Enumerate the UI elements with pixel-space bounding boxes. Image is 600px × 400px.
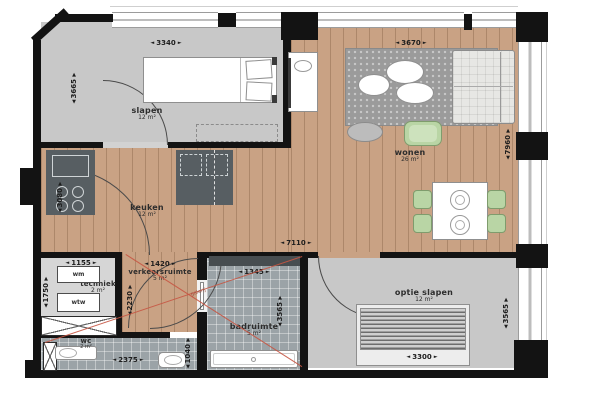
plate-inner [455, 195, 465, 205]
dimension-wonen-height: ▲ 7960 ▼ [502, 124, 514, 166]
dim-arrow-up-icon: ▲ [504, 298, 508, 303]
dim-arrow-left-icon: ◄ [65, 261, 69, 266]
room-label-optie-slapen: optie slapen 12 m² [389, 288, 459, 304]
dim-value: 3080 [57, 188, 64, 207]
dining-chair [487, 190, 506, 209]
sideboard-bowl [294, 60, 312, 72]
window [518, 160, 542, 244]
window-sill-line-top [110, 6, 518, 7]
wall-bottom [28, 370, 548, 378]
armchair-cushion [409, 125, 437, 142]
toilet-bowl [164, 355, 182, 365]
wall-segment [464, 14, 472, 30]
window [518, 42, 542, 132]
room-area: 2 m² [66, 345, 106, 351]
wall-slapen-keuken [168, 142, 291, 148]
tv [288, 58, 291, 108]
dim-value: 3340 [156, 40, 175, 47]
dim-arrow-up-icon: ▲ [72, 73, 76, 78]
sofa-back-seam [500, 52, 501, 122]
washing-machine-label: wm [73, 271, 85, 278]
dim-value: 1750 [43, 283, 50, 302]
dim-value: 2375 [118, 357, 137, 364]
room-area: 12 m² [117, 212, 177, 219]
dim-value: 3665 [71, 79, 78, 98]
dim-arrow-right-icon: ► [93, 261, 97, 266]
wall-verkeer-badruimte [197, 312, 207, 372]
sofa-seat-seam [454, 86, 513, 87]
dim-arrow-right-icon: ► [423, 41, 427, 46]
window [518, 268, 542, 340]
dim-arrow-down-icon: ▼ [44, 304, 48, 309]
floor-plan: wm wtw galerij slapen 12 m² wonen 26 m² … [0, 0, 600, 400]
sofa [452, 50, 515, 124]
dim-value: 1155 [71, 260, 90, 267]
dim-arrow-left-icon: ◄ [112, 358, 116, 363]
coffee-table [396, 82, 434, 104]
wall-badruimte-optie [300, 252, 308, 376]
dim-arrow-left-icon: ◄ [238, 270, 242, 275]
pouf [347, 122, 383, 142]
dining-chair [487, 214, 506, 233]
stove-burner [72, 200, 84, 212]
dim-arrow-down-icon: ▼ [72, 100, 76, 105]
room-label-wc: wc 2 m² [66, 337, 106, 351]
room-area: 12 m² [389, 297, 459, 304]
heat-recovery-label: wtw [72, 299, 86, 306]
dim-value: 3300 [412, 354, 431, 361]
optional-closet-outline [196, 124, 278, 142]
room-label-slapen: slapen 12 m² [117, 106, 177, 122]
plate-inner [455, 220, 465, 230]
island-appliance-outline [180, 154, 202, 176]
dimension-total-width: ◄ 7110 ► [258, 238, 334, 248]
window [236, 12, 281, 28]
dim-arrow-right-icon: ► [172, 262, 176, 267]
wall-segment [218, 13, 236, 27]
dim-arrow-down-icon: ▼ [58, 209, 62, 214]
dim-value: 3670 [401, 40, 420, 47]
dimension-wc-height: ▲ 1040 ▼ [182, 340, 194, 368]
pillow [246, 81, 273, 101]
dim-value: 1420 [150, 261, 169, 268]
dim-arrow-right-icon: ► [178, 41, 182, 46]
dim-value: 2230 [127, 291, 134, 310]
dining-chair [413, 190, 432, 209]
wall-slapen-keuken [41, 142, 103, 148]
dim-value: 1040 [185, 344, 192, 363]
dimension-techniek-width: ◄ 1155 ► [50, 259, 112, 268]
dim-arrow-up-icon: ▲ [44, 277, 48, 282]
dim-arrow-down-icon: ▼ [278, 323, 282, 328]
dim-arrow-up-icon: ▲ [128, 285, 132, 290]
dim-arrow-down-icon: ▼ [506, 156, 510, 161]
room-label-wonen: wonen 26 m² [380, 148, 440, 164]
window [112, 12, 218, 28]
dim-arrow-down-icon: ▼ [186, 365, 190, 370]
dining-chair [413, 214, 432, 233]
dim-arrow-right-icon: ► [434, 355, 438, 360]
dimension-wc-width: ◄ 2375 ► [95, 356, 161, 365]
dimension-keuken-height: ▲ 3080 ▼ [54, 178, 66, 218]
wall-corner-block [516, 12, 548, 42]
bed-frame-corner [272, 95, 277, 103]
kitchen-sink [52, 155, 89, 177]
dim-arrow-right-icon: ► [308, 241, 312, 246]
shaft [41, 316, 117, 336]
dimension-optie-bed-width: ◄ 3300 ► [388, 353, 456, 362]
dim-arrow-left-icon: ◄ [280, 241, 284, 246]
wall-left [33, 40, 41, 372]
dim-arrow-down-icon: ▼ [504, 325, 508, 330]
room-area: 26 m² [380, 157, 440, 164]
window-sill-line-right [546, 42, 547, 342]
door-opening-wc [170, 332, 197, 338]
dimension-badruimte-height: ▲ 3565 ▼ [274, 292, 286, 332]
room-area: 12 m² [117, 115, 177, 122]
washing-machine: wm [57, 266, 100, 283]
dim-arrow-up-icon: ▲ [278, 296, 282, 301]
room-label-keuken: keuken 12 m² [117, 203, 177, 219]
dim-value: 7960 [505, 135, 512, 154]
pillow [245, 59, 272, 80]
bed-frame-corner [272, 57, 277, 65]
dimension-techniek-height: ▲ 1750 ▼ [40, 274, 52, 312]
bed-duvet-line [240, 58, 241, 102]
dimension-slapen-height: ▲ 3665 ▼ [68, 68, 80, 110]
dim-value: 7110 [286, 240, 305, 247]
optional-bed-mattress [360, 308, 466, 350]
dim-arrow-left-icon: ◄ [395, 41, 399, 46]
window [472, 12, 516, 28]
dim-arrow-up-icon: ▲ [506, 129, 510, 134]
dim-arrow-up-icon: ▲ [58, 182, 62, 187]
dim-arrow-up-icon: ▲ [186, 338, 190, 343]
dim-arrow-right-icon: ► [140, 358, 144, 363]
wall-optie-top [380, 252, 518, 258]
dim-arrow-left-icon: ◄ [150, 41, 154, 46]
wall-pilaster [20, 168, 33, 205]
island-appliance-outline [206, 154, 228, 176]
dim-arrow-right-icon: ► [266, 270, 270, 275]
stove-burner [72, 186, 84, 198]
dim-value: 3565 [277, 302, 284, 321]
heat-recovery-unit: wtw [57, 293, 100, 312]
coffee-table [358, 74, 390, 96]
window [318, 12, 464, 28]
wall-segment [516, 244, 548, 268]
bathtub-drain [251, 357, 256, 362]
dimension-optie-height: ▲ 3565 ▼ [500, 294, 512, 334]
dim-value: 3565 [503, 304, 510, 323]
dimension-slapen-width: ◄ 3340 ► [130, 38, 202, 48]
dim-arrow-left-icon: ◄ [406, 355, 410, 360]
hood-dashed-line [214, 150, 216, 205]
dimension-wonen-width: ◄ 3670 ► [375, 38, 447, 48]
coffee-table [386, 60, 424, 84]
wall-segment [516, 132, 548, 160]
